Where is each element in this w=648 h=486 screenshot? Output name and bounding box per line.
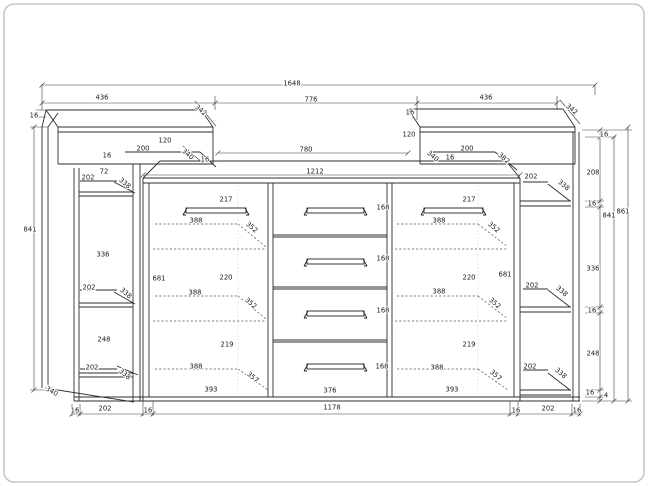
dimension-label: 208 bbox=[587, 168, 600, 176]
dimension-label: 120 bbox=[159, 136, 172, 144]
dimension-label: 168 bbox=[376, 362, 389, 370]
dimension-label: 16 bbox=[201, 155, 210, 163]
sideboard-dimension-drawing: 1648436776436342342161612012020020034034… bbox=[0, 0, 648, 486]
dimension-label: 780 bbox=[300, 145, 313, 153]
dimension-label: 202 bbox=[526, 281, 539, 289]
dimension-label: 219 bbox=[221, 340, 234, 348]
dimension-label: 1648 bbox=[283, 79, 300, 87]
dimension-label: 1178 bbox=[323, 403, 340, 411]
technical-drawing-canvas: 1648436776436342342161612012020020034034… bbox=[0, 0, 648, 486]
dimension-label: 202 bbox=[525, 172, 538, 180]
dimension-label: 16 bbox=[588, 199, 597, 207]
dimension-label: 388 bbox=[433, 287, 446, 295]
dimension-label: 436 bbox=[480, 93, 493, 101]
dimension-label: 436 bbox=[96, 93, 109, 101]
dimension-label: 202 bbox=[82, 173, 95, 181]
dimension-label: 841 bbox=[603, 211, 616, 219]
dimension-label: 861 bbox=[617, 207, 630, 215]
dimension-label: 388 bbox=[190, 362, 203, 370]
dimension-label: 200 bbox=[137, 144, 150, 152]
dimension-label: 16 bbox=[588, 306, 597, 314]
dimension-label: 168 bbox=[377, 203, 390, 211]
dimension-label: 168 bbox=[377, 254, 390, 262]
dimension-label: 336 bbox=[587, 264, 600, 272]
dimension-label: 168 bbox=[377, 306, 390, 314]
dimension-label: 776 bbox=[305, 95, 318, 103]
dimension-label: 120 bbox=[403, 130, 416, 138]
dimension-label: 202 bbox=[524, 362, 537, 370]
dimension-label: 681 bbox=[499, 270, 512, 278]
dimension-label: 16 bbox=[573, 406, 582, 414]
dimension-label: 16 bbox=[600, 130, 609, 138]
dimension-label: 248 bbox=[587, 349, 600, 357]
dimension-label: 16 bbox=[144, 406, 153, 414]
dimension-label: 16 bbox=[586, 388, 595, 396]
dimension-label: 16 bbox=[406, 108, 415, 116]
dimension-label: 376 bbox=[324, 386, 337, 394]
dimension-label: 4 bbox=[604, 391, 608, 399]
dimension-label: 219 bbox=[463, 340, 476, 348]
dimension-label: 220 bbox=[220, 273, 233, 281]
dimension-label: 202 bbox=[99, 404, 112, 412]
dimension-label: 388 bbox=[190, 216, 203, 224]
dimension-label: 72 bbox=[100, 167, 109, 175]
dimension-label: 202 bbox=[83, 283, 96, 291]
dimension-label: 16 bbox=[30, 111, 39, 119]
dimension-label: 248 bbox=[98, 335, 111, 343]
dimension-label: 16 bbox=[446, 153, 455, 161]
dimension-label: 388 bbox=[189, 288, 202, 296]
dimension-label: 16 bbox=[71, 406, 80, 414]
dimension-label: 393 bbox=[205, 385, 218, 393]
dimension-label: 202 bbox=[542, 404, 555, 412]
dimension-label: 202 bbox=[86, 363, 99, 371]
dimension-label: 336 bbox=[97, 250, 110, 258]
dimension-label: 16 bbox=[103, 151, 112, 159]
dimension-label: 220 bbox=[463, 273, 476, 281]
dimension-label: 217 bbox=[463, 195, 476, 203]
dimension-label: 841 bbox=[24, 225, 37, 233]
dimension-label: 16 bbox=[512, 406, 521, 414]
dimension-label: 217 bbox=[220, 195, 233, 203]
dimension-label: 393 bbox=[446, 385, 459, 393]
dimension-label: 200 bbox=[461, 144, 474, 152]
dimension-label: 1212 bbox=[306, 167, 323, 175]
dimension-label: 388 bbox=[431, 363, 444, 371]
dimension-label: 681 bbox=[153, 274, 166, 282]
dimension-label: 388 bbox=[433, 216, 446, 224]
